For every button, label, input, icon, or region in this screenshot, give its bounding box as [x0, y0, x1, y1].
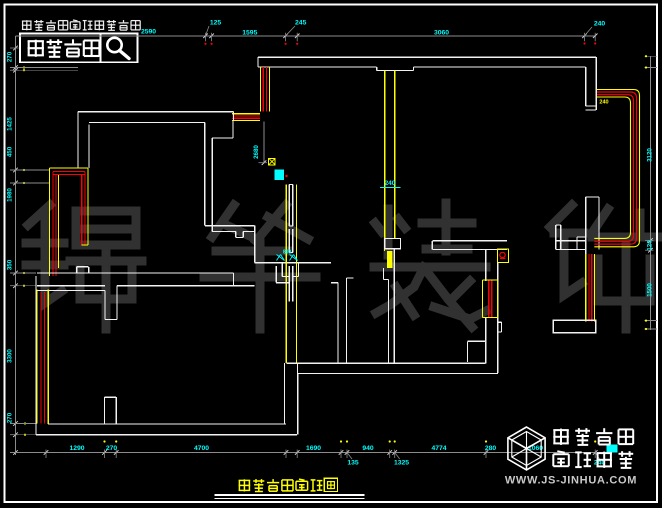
svg-text:1690: 1690 — [306, 445, 321, 452]
svg-text:4774: 4774 — [431, 445, 446, 452]
svg-text:1595: 1595 — [242, 29, 257, 36]
svg-text:WWW.JS-JINHUA.COM: WWW.JS-JINHUA.COM — [505, 475, 637, 487]
svg-text:2590: 2590 — [141, 29, 156, 36]
svg-text:3060: 3060 — [434, 29, 449, 36]
svg-text:125: 125 — [210, 20, 222, 27]
svg-text:450: 450 — [7, 146, 14, 157]
svg-text:270: 270 — [106, 445, 118, 452]
svg-text:280: 280 — [485, 445, 497, 452]
svg-text:3120: 3120 — [647, 148, 654, 162]
svg-text:240: 240 — [594, 21, 606, 28]
svg-text:1325: 1325 — [394, 460, 409, 467]
svg-text:135: 135 — [347, 460, 359, 467]
svg-text:3300: 3300 — [7, 349, 14, 363]
svg-text:1500: 1500 — [647, 283, 654, 297]
svg-text:940: 940 — [362, 445, 374, 452]
svg-text:270: 270 — [7, 51, 14, 62]
svg-text:4700: 4700 — [194, 445, 209, 452]
svg-text:1425: 1425 — [7, 117, 14, 131]
svg-text:350: 350 — [7, 259, 14, 270]
svg-text:2680: 2680 — [253, 145, 260, 159]
svg-text:270: 270 — [7, 412, 14, 423]
svg-text:1290: 1290 — [69, 445, 84, 452]
svg-text:800: 800 — [283, 250, 292, 256]
svg-text:1980: 1980 — [7, 188, 14, 202]
svg-text:245: 245 — [295, 20, 307, 27]
svg-text:240: 240 — [385, 180, 396, 187]
svg-text:240: 240 — [599, 100, 608, 106]
svg-text:120: 120 — [647, 240, 654, 251]
